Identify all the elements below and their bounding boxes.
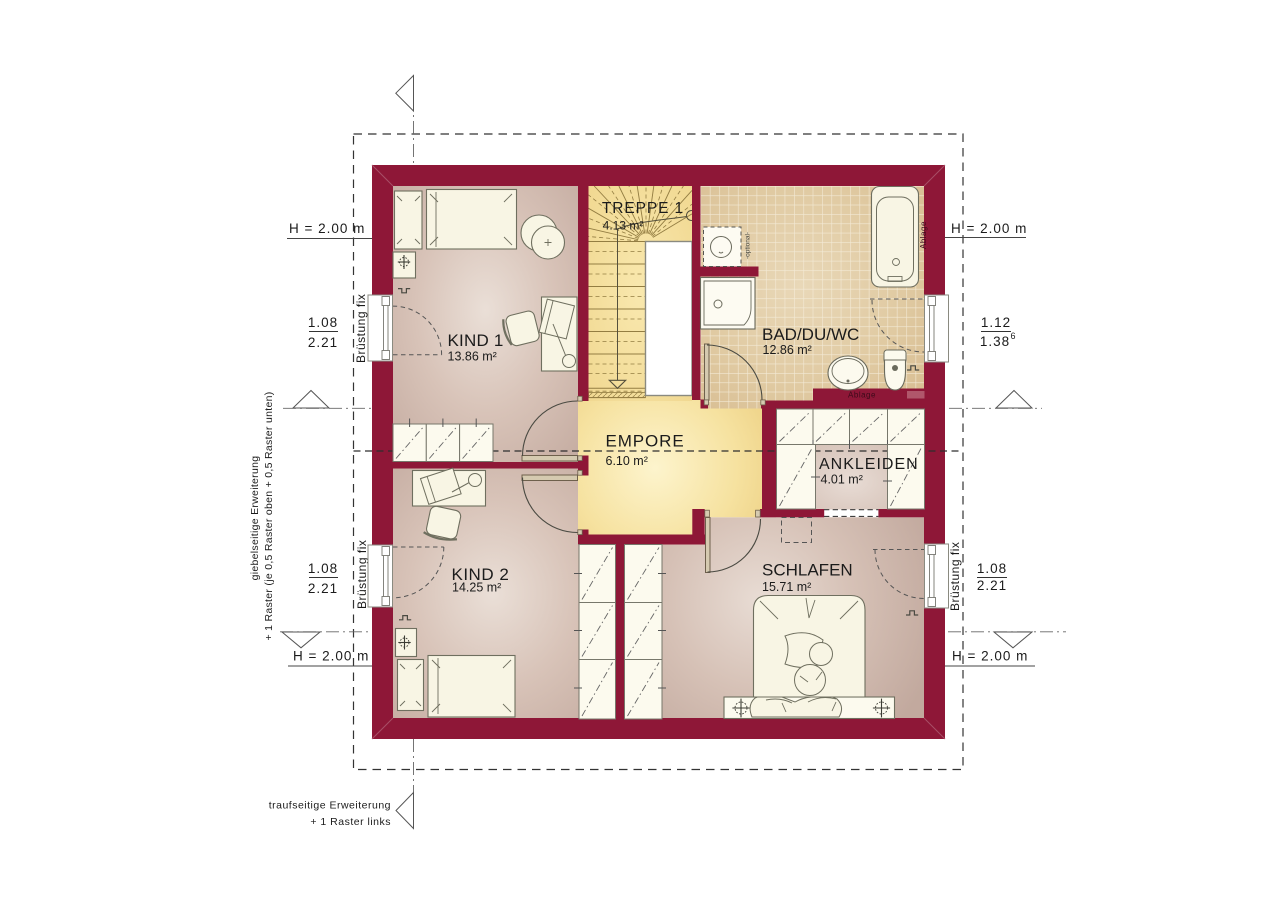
svg-text:4.01 m²: 4.01 m² [821, 473, 863, 487]
svg-text:2.21: 2.21 [308, 335, 338, 350]
svg-text:KIND 1: KIND 1 [448, 331, 504, 350]
svg-text:+ 1 Raster links: + 1 Raster links [310, 816, 391, 828]
svg-text:12.86 m²: 12.86 m² [763, 343, 812, 357]
svg-text:SCHLAFEN: SCHLAFEN [762, 561, 853, 580]
svg-text:1.08: 1.08 [308, 561, 338, 576]
svg-text:H = 2.00 m: H = 2.00 m [289, 221, 365, 236]
svg-text:+ 1 Raster (je 0,5 Raster oben: + 1 Raster (je 0,5 Raster oben + 0,5 Ras… [263, 391, 275, 640]
svg-text:1.12: 1.12 [981, 315, 1011, 330]
svg-text:-optional-: -optional- [745, 232, 752, 259]
svg-text:traufseitige Erweiterung: traufseitige Erweiterung [269, 800, 391, 812]
svg-text:BAD/DU/WC: BAD/DU/WC [762, 325, 859, 344]
svg-text:giebelseitige Erweiterung: giebelseitige Erweiterung [249, 456, 261, 581]
svg-text:4.13 m²: 4.13 m² [603, 219, 644, 233]
svg-text:H = 2.00 m: H = 2.00 m [952, 649, 1028, 664]
svg-text:Brüstung fix: Brüstung fix [355, 540, 369, 609]
svg-text:Ablage: Ablage [919, 221, 928, 249]
svg-text:ANKLEIDEN: ANKLEIDEN [819, 456, 919, 473]
svg-text:13.86 m²: 13.86 m² [448, 350, 497, 364]
svg-text:15.71 m²: 15.71 m² [762, 580, 811, 594]
svg-text:1.38: 1.38 [980, 334, 1010, 349]
svg-text:Ablage: Ablage [848, 391, 876, 400]
svg-text:1.08: 1.08 [977, 561, 1007, 576]
svg-text:Brüstung fix: Brüstung fix [948, 542, 962, 611]
svg-text:6.10 m²: 6.10 m² [606, 454, 648, 468]
svg-text:EMPORE: EMPORE [606, 432, 685, 451]
svg-text:1.08: 1.08 [308, 315, 338, 330]
svg-text:2.21: 2.21 [308, 581, 338, 596]
svg-text:6: 6 [1010, 331, 1015, 341]
svg-text:TREPPE 1: TREPPE 1 [602, 200, 684, 217]
svg-text:14.25 m²: 14.25 m² [452, 581, 501, 595]
svg-text:H = 2.00 m: H = 2.00 m [951, 221, 1027, 236]
svg-text:2.21: 2.21 [977, 578, 1007, 593]
svg-text:Brüstung fix: Brüstung fix [354, 294, 368, 363]
svg-text:H = 2.00 m: H = 2.00 m [293, 649, 369, 664]
